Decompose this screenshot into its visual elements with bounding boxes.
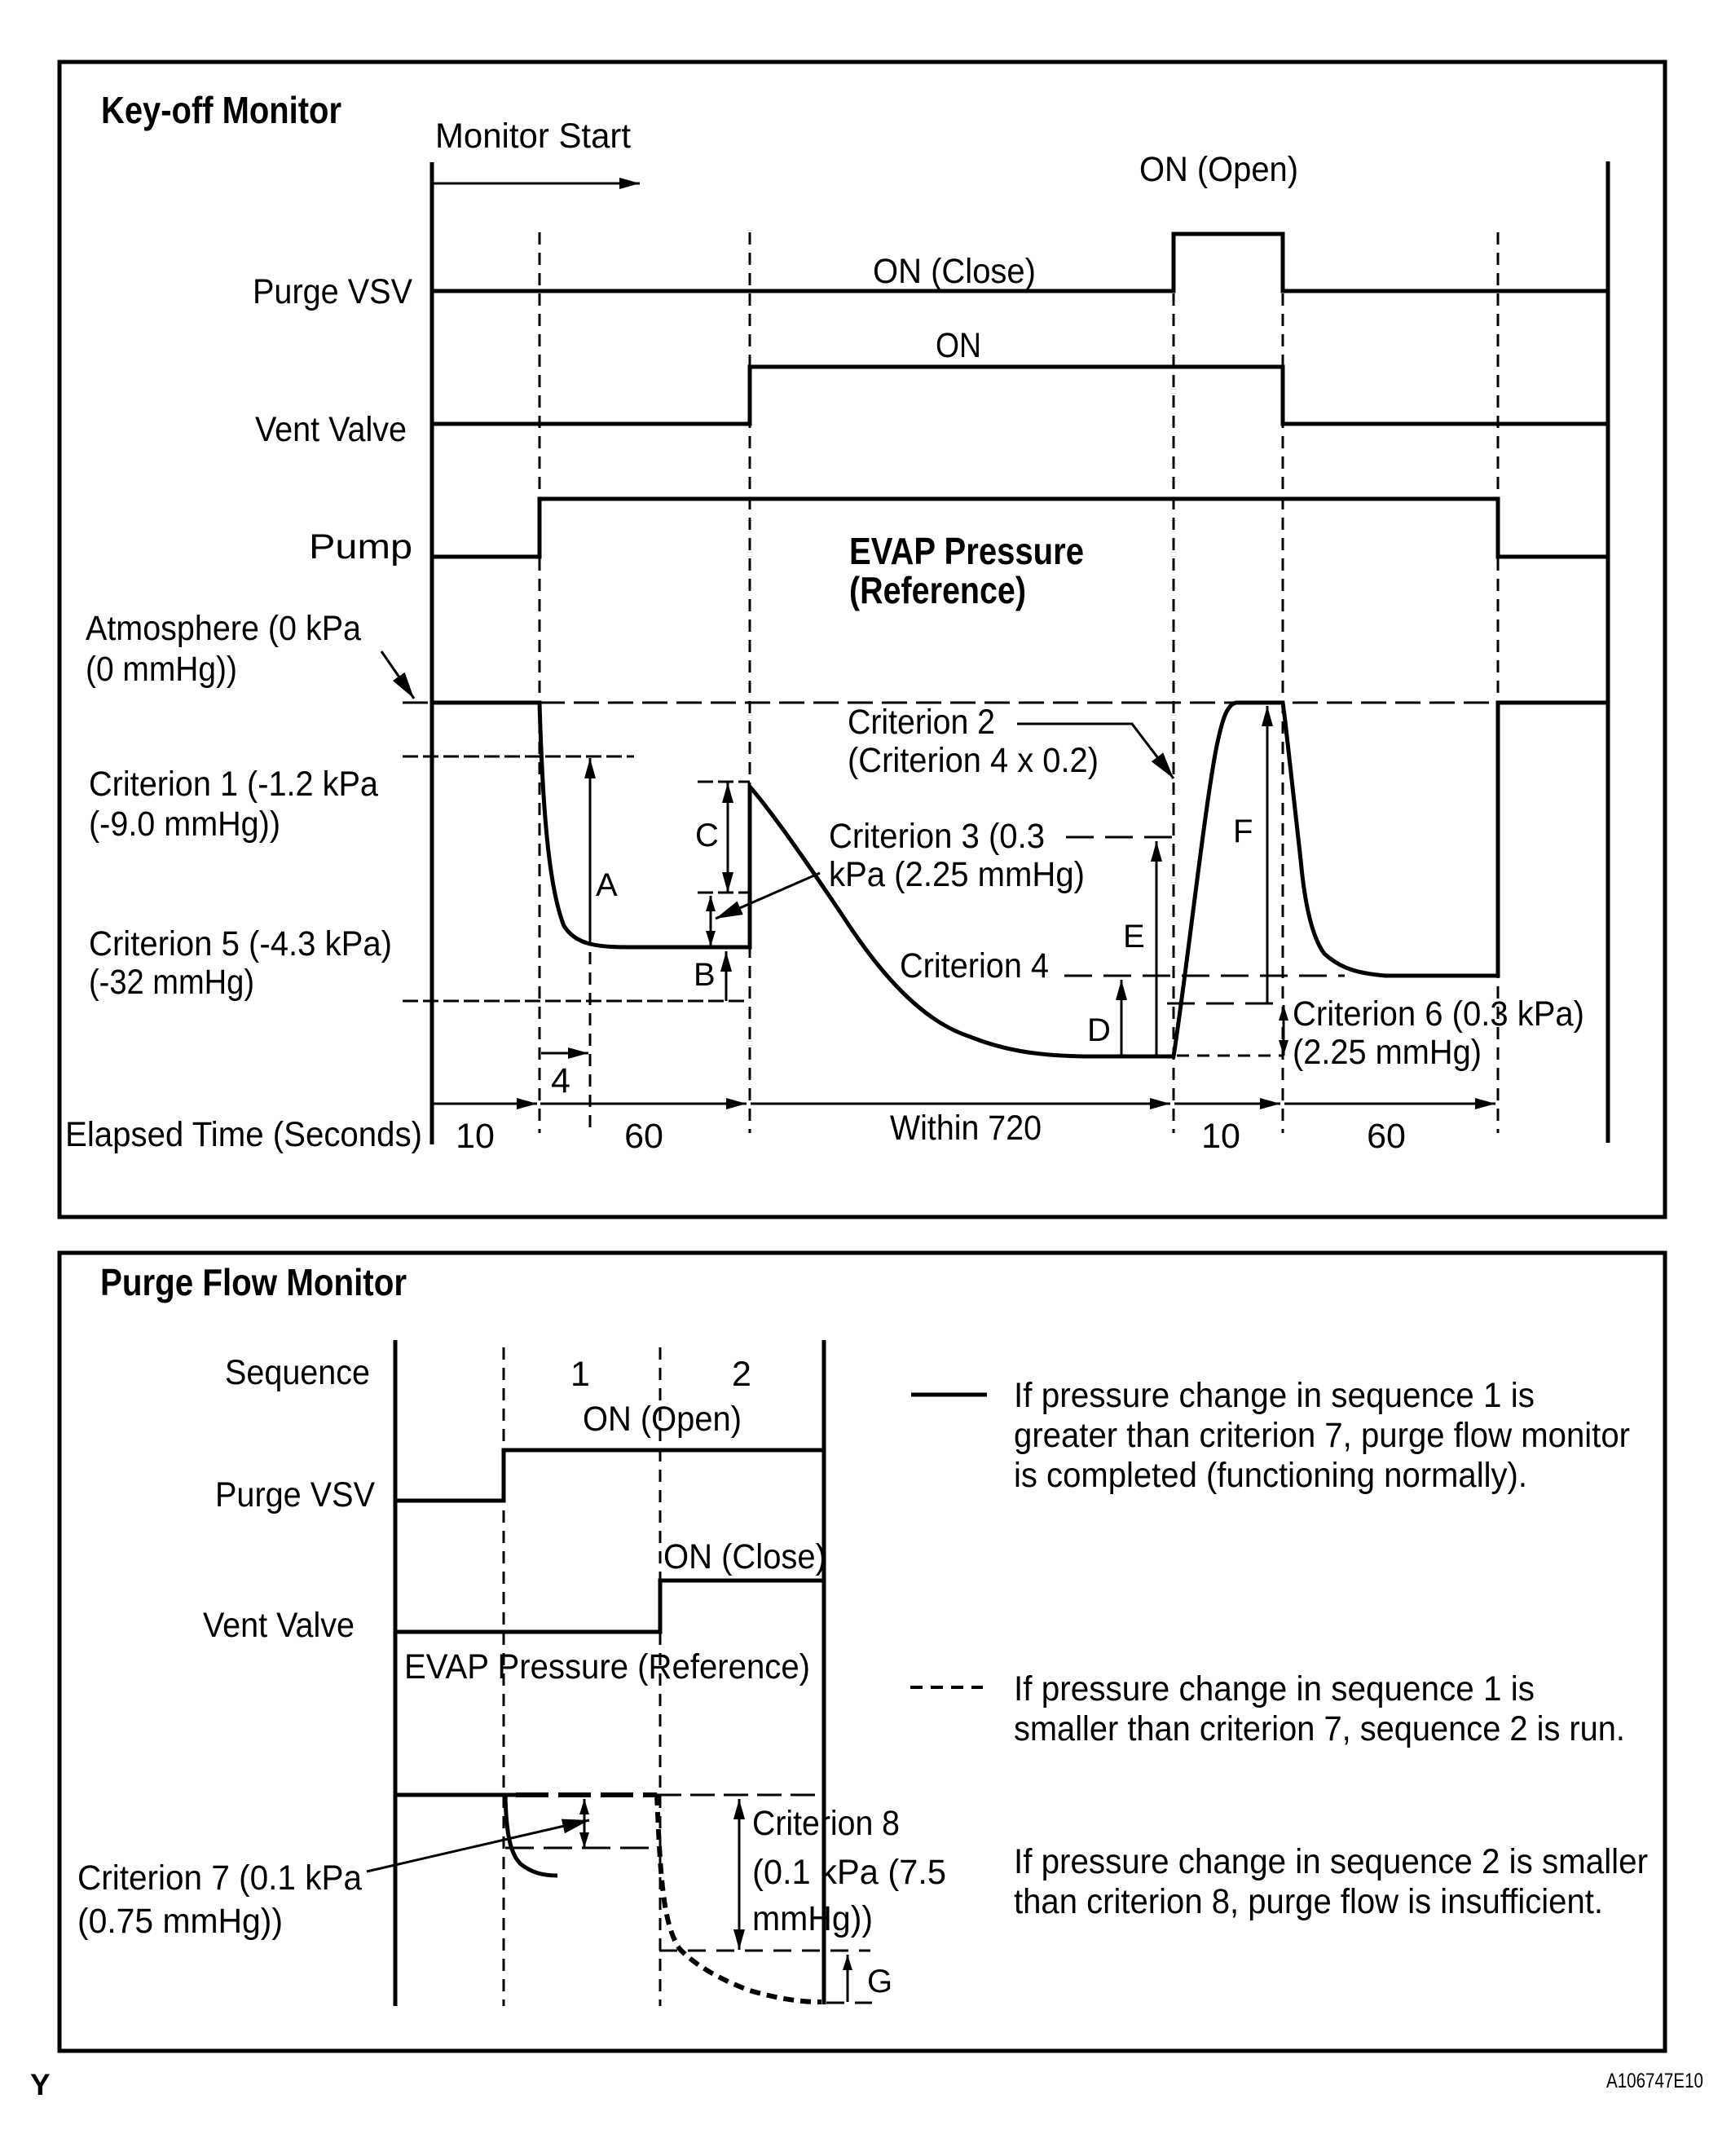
- svg-text:EVAP Pressure: EVAP Pressure: [849, 530, 1084, 572]
- svg-text:Purge VSV: Purge VSV: [253, 272, 412, 311]
- svg-text:than criterion 8, purge flow i: than criterion 8, purge flow is insuffic…: [1014, 1882, 1603, 1921]
- svg-text:2: 2: [732, 1355, 751, 1394]
- svg-text:F: F: [1233, 813, 1253, 849]
- svg-text:G: G: [867, 1964, 892, 1999]
- svg-text:(-32 mmHg): (-32 mmHg): [89, 963, 254, 1002]
- svg-text:If pressure change in sequence: If pressure change in sequence 2 is smal…: [1014, 1842, 1648, 1881]
- svg-text:If pressure change in sequence: If pressure change in sequence 1 is: [1014, 1376, 1535, 1415]
- svg-text:smaller than criterion 7, sequ: smaller than criterion 7, sequence 2 is …: [1014, 1709, 1625, 1748]
- svg-text:ON (Close): ON (Close): [873, 252, 1036, 291]
- svg-text:greater than criterion 7, purg: greater than criterion 7, purge flow mon…: [1014, 1416, 1630, 1455]
- svg-text:Criterion 6 (0.3 kPa): Criterion 6 (0.3 kPa): [1293, 994, 1584, 1034]
- svg-text:60: 60: [1367, 1117, 1406, 1156]
- svg-text:A106747E10: A106747E10: [1606, 2070, 1703, 2092]
- svg-text:Criterion 8: Criterion 8: [752, 1804, 900, 1843]
- svg-text:is completed (functioning norm: is completed (functioning normally).: [1014, 1456, 1527, 1495]
- svg-text:E: E: [1123, 919, 1145, 955]
- svg-text:4: 4: [551, 1061, 570, 1100]
- svg-text:1: 1: [570, 1355, 590, 1394]
- svg-text:ON (Open): ON (Open): [1139, 150, 1298, 189]
- svg-text:B: B: [694, 957, 716, 993]
- svg-text:ON (Close): ON (Close): [663, 1537, 826, 1576]
- svg-text:Criterion 1 (-1.2 kPa: Criterion 1 (-1.2 kPa: [89, 765, 378, 804]
- svg-text:Pump: Pump: [309, 527, 412, 567]
- svg-text:Key-off Monitor: Key-off Monitor: [101, 89, 341, 131]
- svg-text:(0 mmHg)): (0 mmHg)): [86, 650, 237, 689]
- svg-text:Elapsed Time (Seconds): Elapsed Time (Seconds): [65, 1115, 422, 1154]
- svg-text:(0.75 mmHg)): (0.75 mmHg)): [77, 1902, 283, 1941]
- svg-text:10: 10: [1201, 1117, 1240, 1156]
- svg-text:(Criterion 4 x 0.2): (Criterion 4 x 0.2): [848, 741, 1099, 780]
- svg-text:(2.25 mmHg): (2.25 mmHg): [1293, 1033, 1482, 1072]
- svg-text:(0.1 kPa (7.5: (0.1 kPa (7.5: [752, 1853, 946, 1892]
- svg-text:Within 720: Within 720: [890, 1109, 1042, 1148]
- svg-text:If pressure change in sequence: If pressure change in sequence 1 is: [1014, 1669, 1535, 1708]
- svg-text:Criterion 5 (-4.3 kPa): Criterion 5 (-4.3 kPa): [89, 924, 392, 963]
- svg-text:Purge Flow Monitor: Purge Flow Monitor: [100, 1261, 407, 1303]
- svg-text:Atmosphere (0 kPa: Atmosphere (0 kPa: [86, 609, 361, 648]
- svg-text:Vent Valve: Vent Valve: [203, 1606, 355, 1645]
- svg-text:(Reference): (Reference): [849, 569, 1026, 611]
- svg-text:ON: ON: [936, 326, 981, 365]
- svg-text:D: D: [1087, 1012, 1111, 1048]
- svg-text:EVAP Pressure (Reference): EVAP Pressure (Reference): [404, 1647, 810, 1686]
- svg-text:Criterion 3 (0.3: Criterion 3 (0.3: [829, 817, 1045, 856]
- svg-text:Criterion 2: Criterion 2: [848, 703, 995, 742]
- svg-text:mmHg)): mmHg)): [752, 1899, 873, 1938]
- svg-text:A: A: [596, 867, 618, 903]
- svg-text:Monitor Start: Monitor Start: [435, 117, 631, 156]
- svg-text:10: 10: [456, 1117, 495, 1156]
- svg-text:Criterion 7 (0.1 kPa: Criterion 7 (0.1 kPa: [77, 1858, 362, 1898]
- svg-text:kPa (2.25 mmHg): kPa (2.25 mmHg): [829, 855, 1085, 894]
- svg-text:Purge VSV: Purge VSV: [215, 1475, 375, 1514]
- svg-text:60: 60: [624, 1117, 663, 1156]
- svg-text:ON (Open): ON (Open): [583, 1400, 742, 1439]
- svg-text:(-9.0 mmHg)): (-9.0 mmHg)): [89, 805, 280, 844]
- svg-text:Criterion 4: Criterion 4: [900, 946, 1049, 985]
- svg-text:Y: Y: [30, 2068, 51, 2101]
- svg-text:Sequence: Sequence: [225, 1353, 370, 1392]
- svg-text:C: C: [695, 818, 719, 853]
- svg-text:Vent Valve: Vent Valve: [255, 410, 407, 449]
